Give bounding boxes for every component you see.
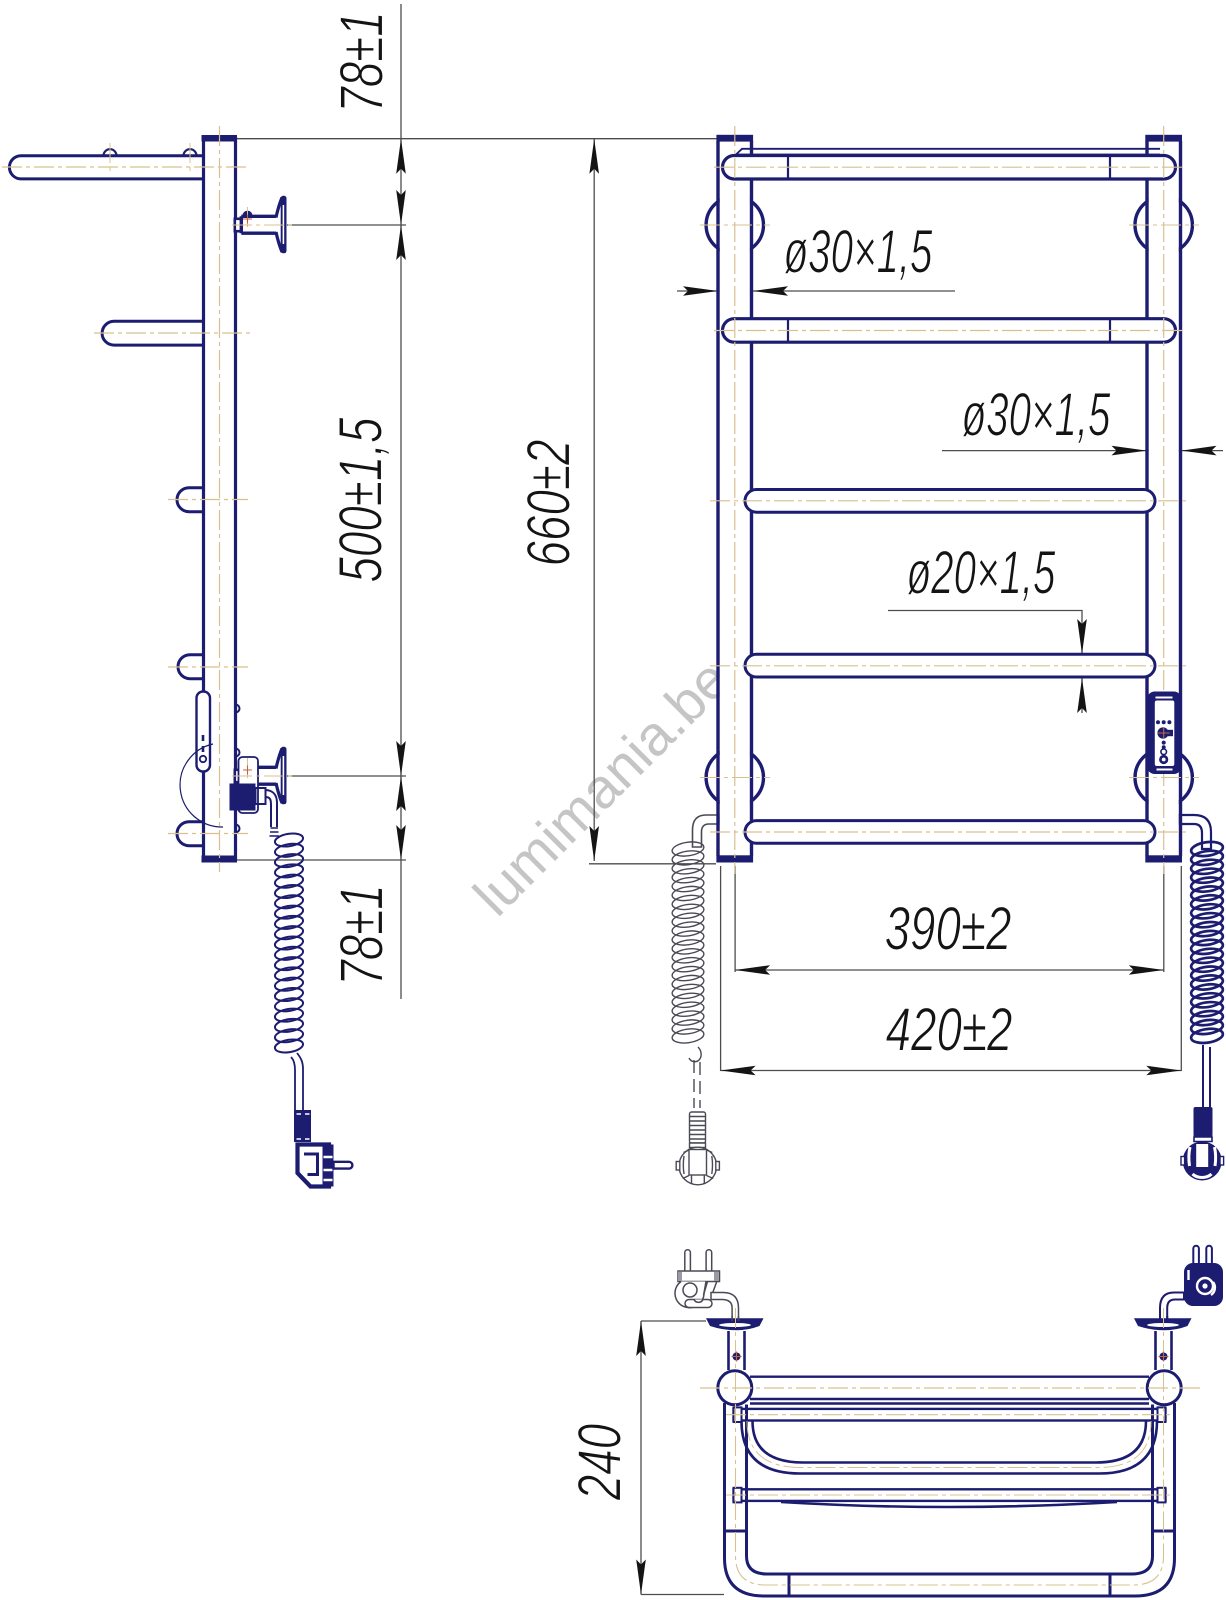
svg-text:660±2: 660±2: [515, 440, 583, 567]
svg-text:390±2: 390±2: [885, 895, 1012, 963]
svg-text:500±1,5: 500±1,5: [327, 417, 395, 583]
svg-text:ø20×1,5: ø20×1,5: [907, 538, 1056, 606]
svg-text:78±1: 78±1: [328, 884, 396, 985]
svg-text:420±2: 420±2: [886, 996, 1013, 1064]
svg-text:240: 240: [566, 1424, 634, 1501]
svg-text:ø30×1,5: ø30×1,5: [784, 217, 933, 285]
svg-text:ø30×1,5: ø30×1,5: [962, 380, 1111, 448]
svg-text:78±1: 78±1: [328, 11, 396, 112]
